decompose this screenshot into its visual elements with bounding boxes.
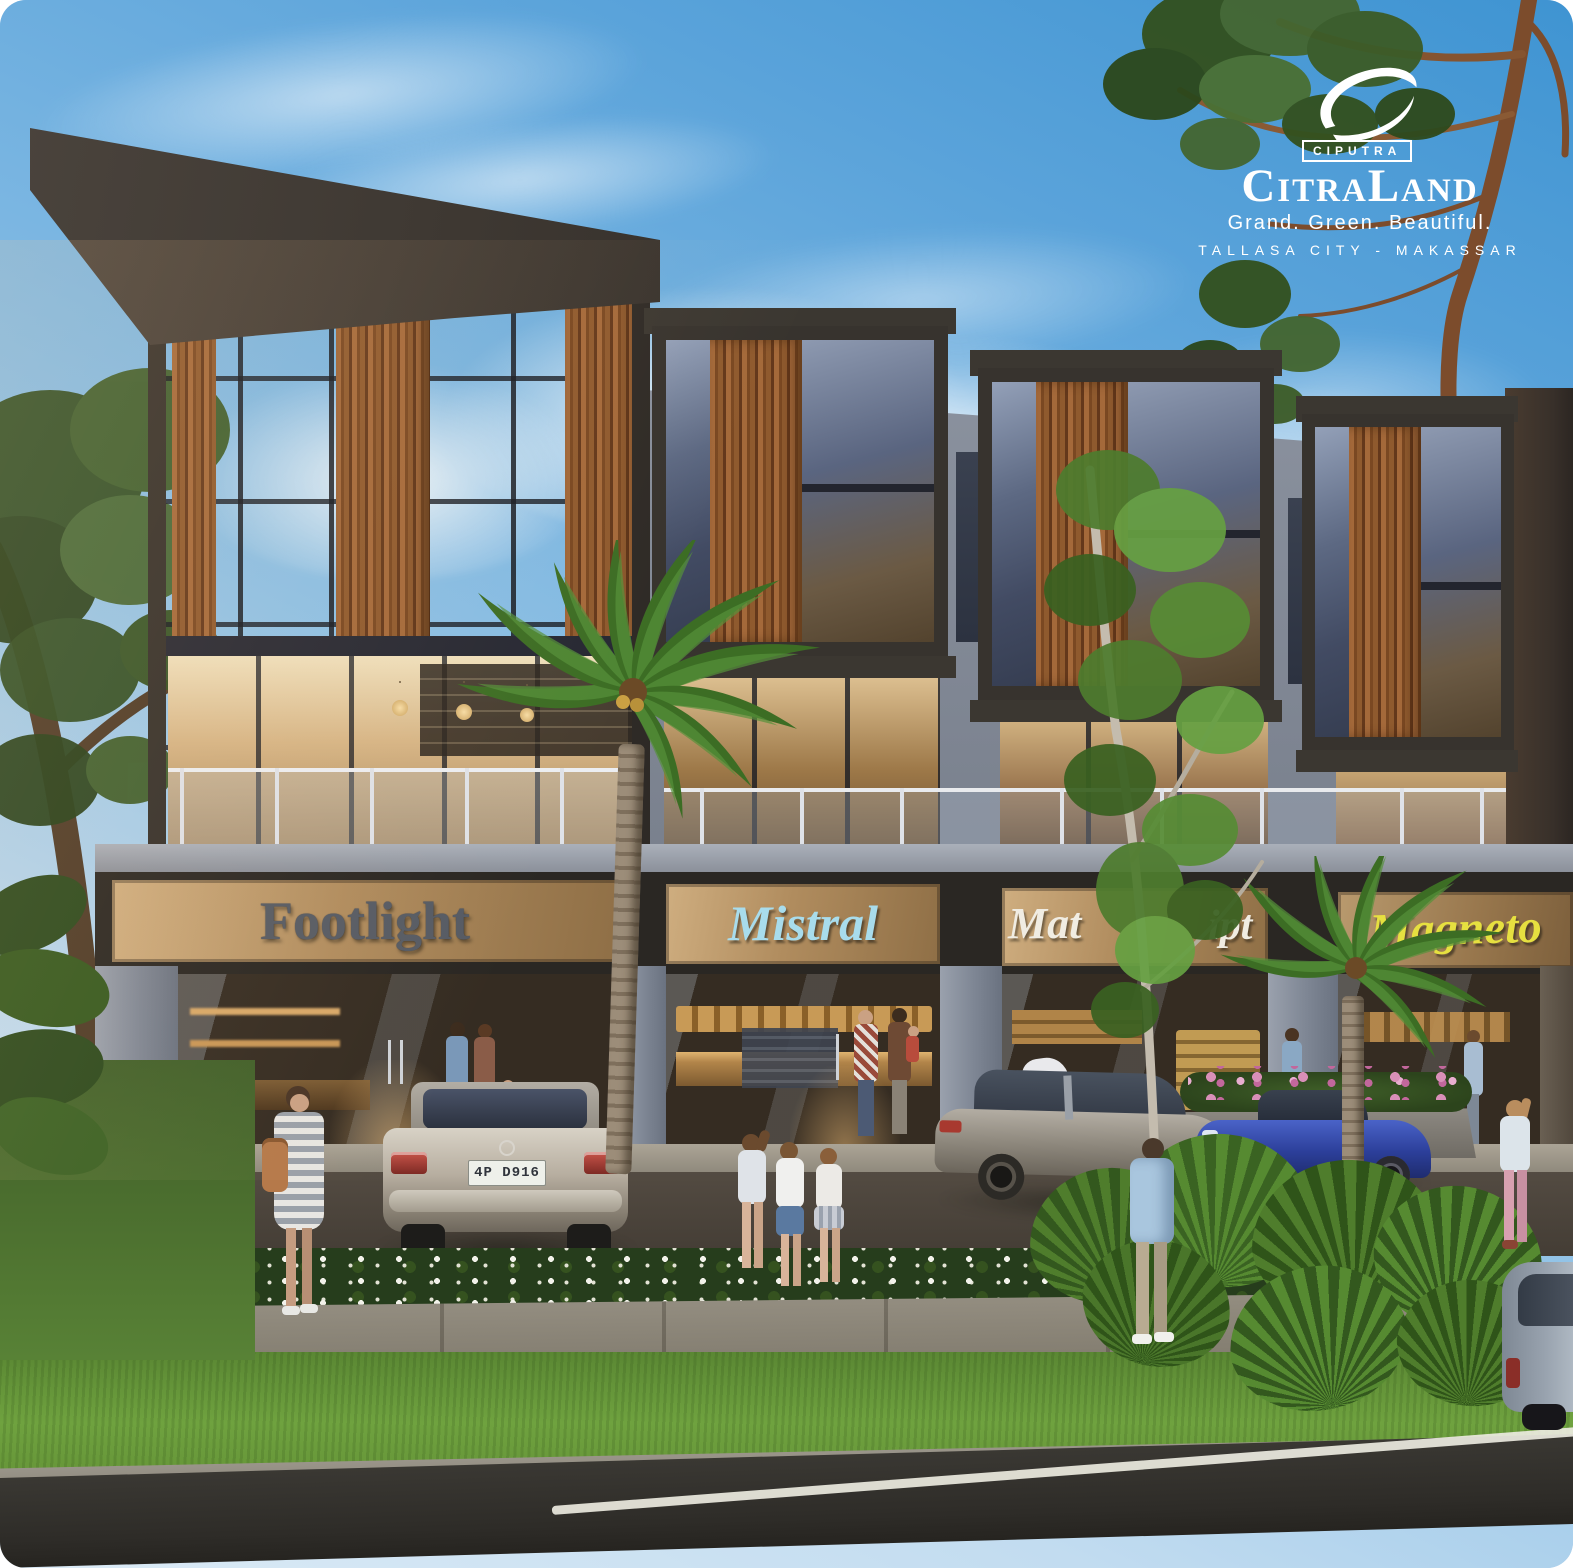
ciputra-wordmark: CIPUTRA: [1302, 140, 1412, 162]
balcony-post: [180, 768, 184, 844]
citraland-wordmark: CitraLand: [1165, 162, 1555, 211]
door-handle: [836, 1034, 839, 1080]
car-taillight: [391, 1152, 427, 1174]
person-woman-striped-dress: [266, 1086, 336, 1328]
car-rear-window: [423, 1089, 587, 1129]
facade-bay-box: [1302, 414, 1514, 750]
door-handle: [388, 1040, 391, 1084]
bay-glass: [1315, 427, 1349, 737]
person-family-at-bakery: [856, 1008, 948, 1144]
balcony-post: [900, 788, 904, 848]
balcony-post: [370, 768, 374, 844]
shoulder-bag: [262, 1138, 288, 1192]
bar-shelf-glow: [190, 1008, 340, 1015]
person-girl-pink-pants: [1490, 1100, 1550, 1280]
bay-wood-slats: [1349, 427, 1421, 737]
license-plate-number: 4P D916: [474, 1165, 540, 1181]
bay-bottom-fascia: [1296, 750, 1518, 772]
palm-crown: [415, 540, 855, 870]
door-handle: [400, 1040, 403, 1084]
silver-sedan: 4P D916: [383, 1082, 628, 1272]
architectural-render: CIPUTRA CitraLand Grand. Green. Beautifu…: [0, 0, 1573, 1568]
footlight-sign: Footlight: [112, 890, 618, 952]
car-taillight: [939, 1120, 961, 1133]
car-bumper: [389, 1190, 622, 1212]
logo-location: TALLASA CITY - MAKASSAR: [1165, 242, 1555, 258]
partial-car-bottom-right: [1492, 1262, 1573, 1438]
tower-frame-left: [148, 296, 166, 848]
person-children-group: [738, 1134, 858, 1304]
citraland-logo: CIPUTRA CitraLand Grand. Green. Beautifu…: [1165, 66, 1555, 266]
bay-transom: [802, 484, 934, 492]
pendant-lamp: [392, 700, 408, 716]
tower-wood-slat-strip: [172, 305, 216, 650]
person-man-blue-jacket: [1116, 1138, 1196, 1370]
bar-shelf-glow: [190, 1040, 340, 1047]
balcony-post: [1400, 788, 1404, 848]
car-emblem: [499, 1140, 515, 1156]
bay-transom: [1421, 582, 1501, 590]
mistral-sign: Mistral: [666, 894, 940, 952]
balcony-post: [275, 768, 279, 844]
screening-tree: [1020, 430, 1300, 1170]
ciputra-swoosh-icon: [1305, 66, 1425, 140]
license-plate: 4P D916: [468, 1160, 546, 1186]
logo-tagline: Grand. Green. Beautiful.: [1165, 212, 1555, 235]
pier-window: [956, 452, 980, 642]
balcony-post: [1480, 788, 1484, 848]
